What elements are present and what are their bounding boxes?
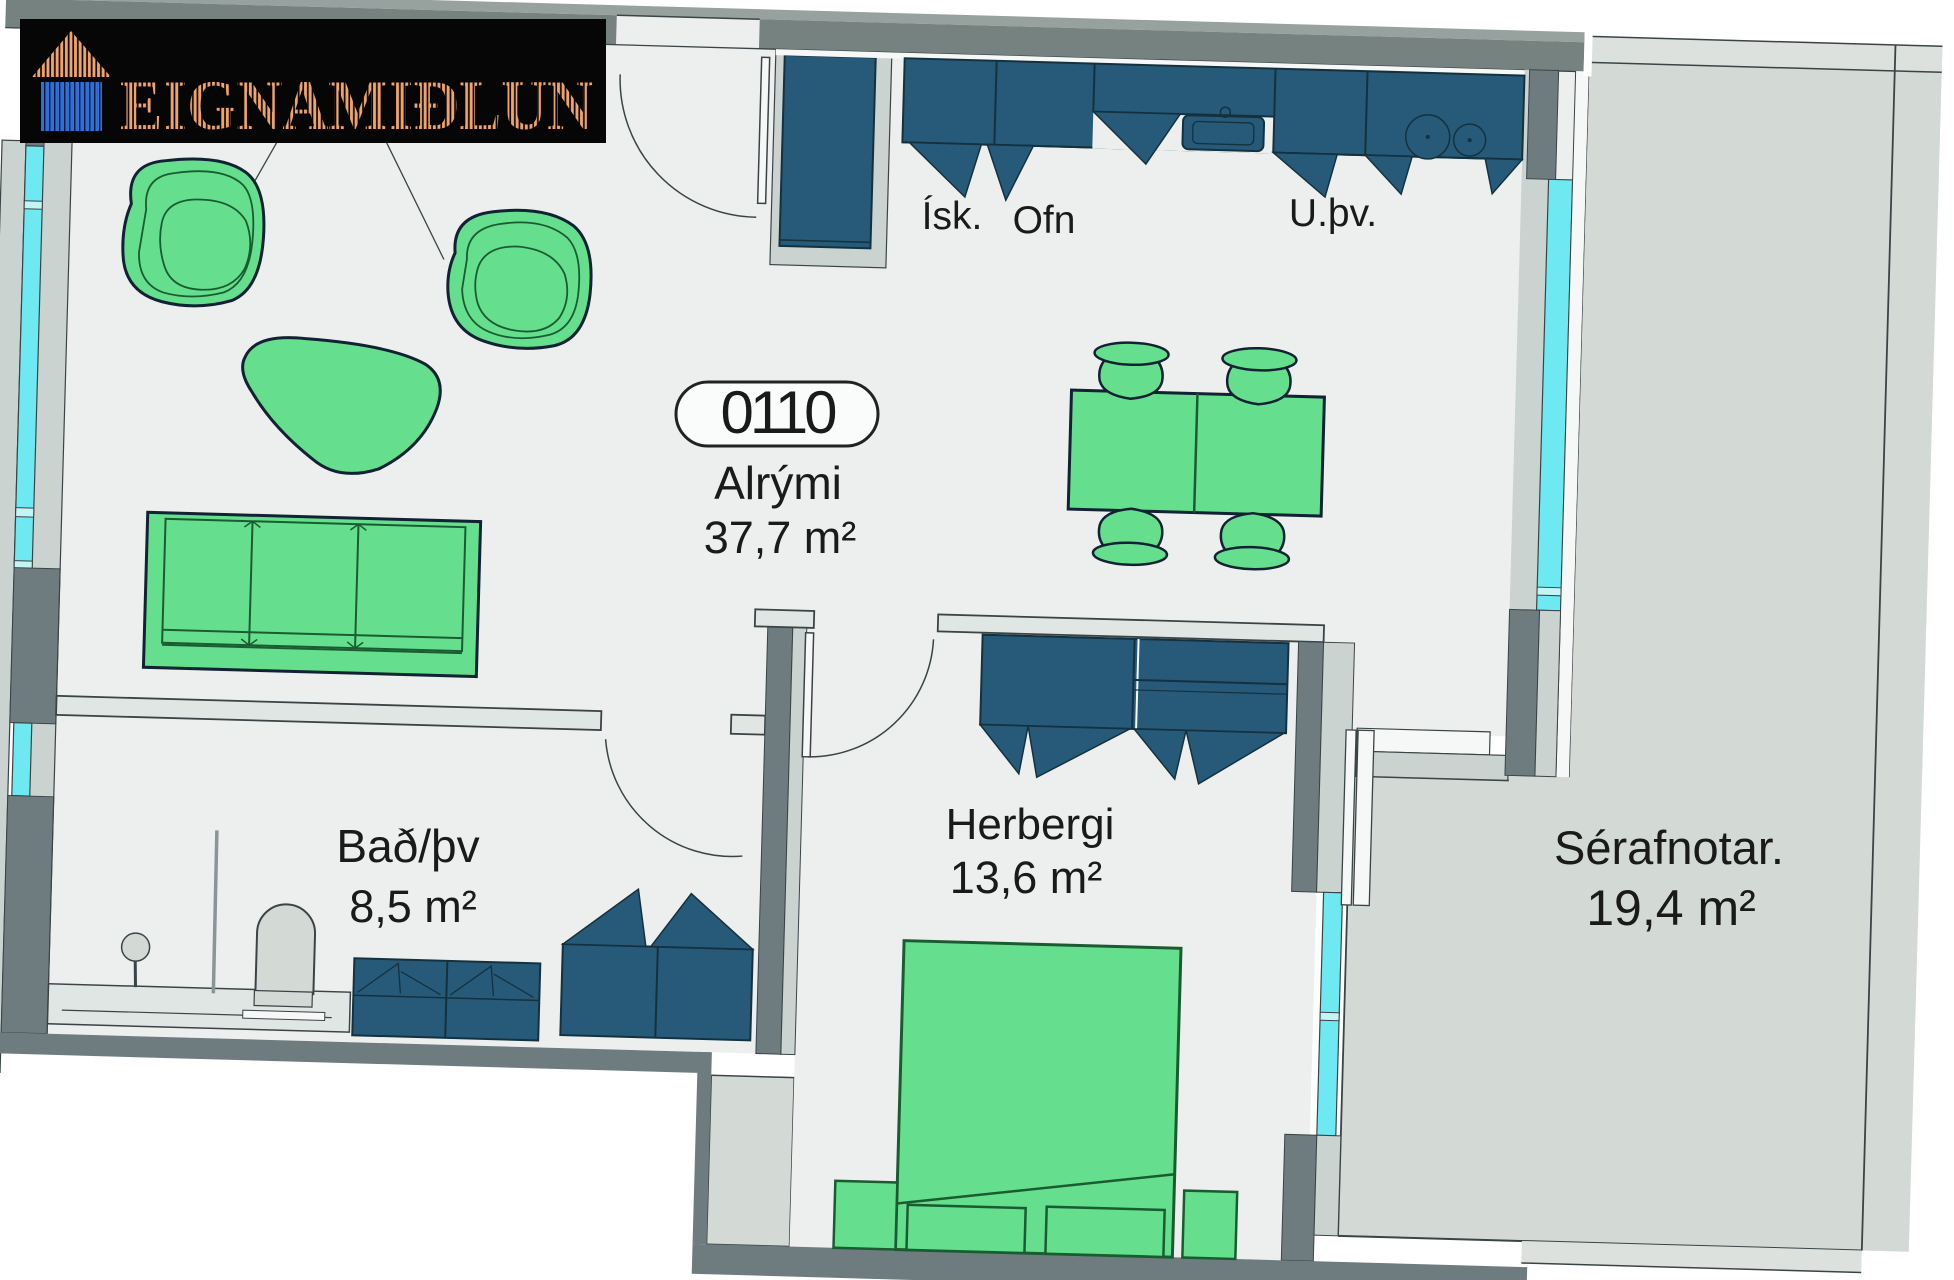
svg-text:13,6 m²: 13,6 m² xyxy=(950,852,1103,903)
svg-text:EIGNAMIÐLUN: EIGNAMIÐLUN xyxy=(120,67,593,145)
svg-text:Herbergi: Herbergi xyxy=(946,800,1115,849)
svg-text:U.þv.: U.þv. xyxy=(1289,192,1377,235)
svg-text:0110: 0110 xyxy=(720,379,836,446)
svg-text:Bað/þv: Bað/þv xyxy=(336,820,479,872)
svg-text:Sérafnotar.: Sérafnotar. xyxy=(1554,821,1784,874)
svg-text:8,5 m²: 8,5 m² xyxy=(349,881,477,932)
svg-text:19,4 m²: 19,4 m² xyxy=(1586,880,1756,936)
svg-text:37,7 m²: 37,7 m² xyxy=(704,512,857,563)
svg-text:Ísk.: Ísk. xyxy=(922,195,983,238)
svg-text:Alrými: Alrými xyxy=(714,457,842,509)
svg-text:Ofn: Ofn xyxy=(1013,199,1076,242)
